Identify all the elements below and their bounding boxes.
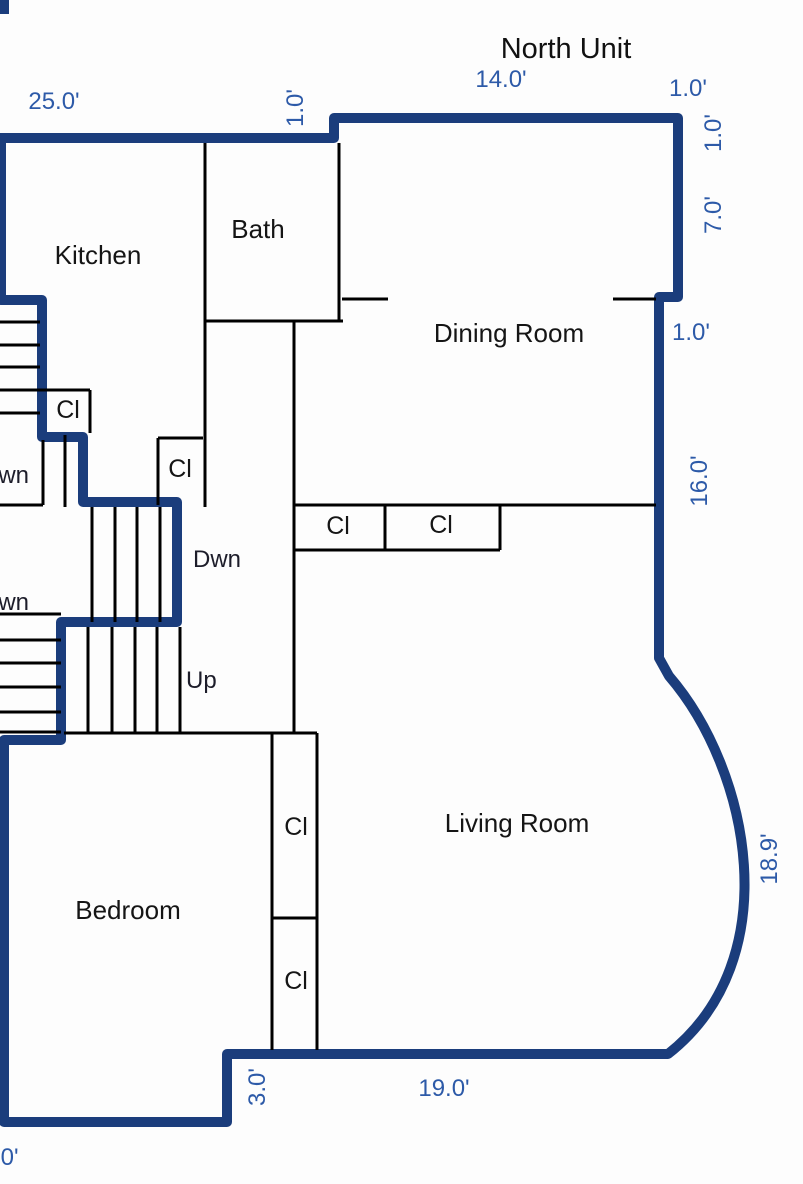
closet-label-living-upper: Cl	[266, 813, 326, 842]
room-label-bedroom: Bedroom	[48, 895, 208, 926]
dimension-right-upper: 1.0'	[700, 103, 728, 163]
closet-label-kitchen: Cl	[38, 396, 98, 425]
dimension-curved-wall: 18.9'	[756, 824, 784, 894]
closet-label-hall-left: Cl	[308, 512, 368, 541]
dimension-bottom-step: 3.0'	[244, 1057, 272, 1117]
floor-plan: North Unit Kitchen Bath Dining Room Livi…	[0, 0, 803, 1184]
stair-label-dwn-center: Dwn	[193, 546, 241, 574]
dimension-right-jog: 1.0'	[667, 319, 715, 347]
dimension-right-dining: 7.0'	[700, 185, 728, 245]
stair-treads-center-lower	[88, 627, 180, 733]
dimension-north-right: 1.0'	[664, 75, 712, 103]
dimension-bath-step: 1.0'	[282, 78, 310, 138]
room-label-dining: Dining Room	[399, 318, 619, 349]
closet-label-hall-right: Cl	[411, 511, 471, 540]
closet-label-living-lower: Cl	[266, 967, 326, 996]
plan-title: North Unit	[480, 33, 652, 66]
room-label-bath: Bath	[188, 214, 328, 245]
dimension-north-top: 14.0'	[470, 66, 532, 94]
stair-label-dwn-lower-left: Dwn	[0, 589, 29, 617]
dimension-right-wall: 16.0'	[686, 446, 714, 516]
dimension-top-left: 25.0'	[24, 88, 84, 116]
dimension-bottom-left-partial: .0'	[0, 1144, 28, 1172]
stair-treads-upper-left	[0, 322, 40, 413]
room-label-kitchen: Kitchen	[18, 240, 178, 271]
stair-label-dwn-upper-left: Dwn	[0, 462, 29, 490]
closet-label-hall: Cl	[150, 455, 210, 484]
stair-treads-lower-left	[0, 614, 61, 732]
stair-treads-center-upper	[92, 507, 160, 622]
dimension-bottom: 19.0'	[413, 1075, 475, 1103]
floor-plan-walls	[0, 0, 803, 1184]
stair-label-up-center: Up	[186, 667, 217, 695]
room-label-living: Living Room	[407, 808, 627, 839]
